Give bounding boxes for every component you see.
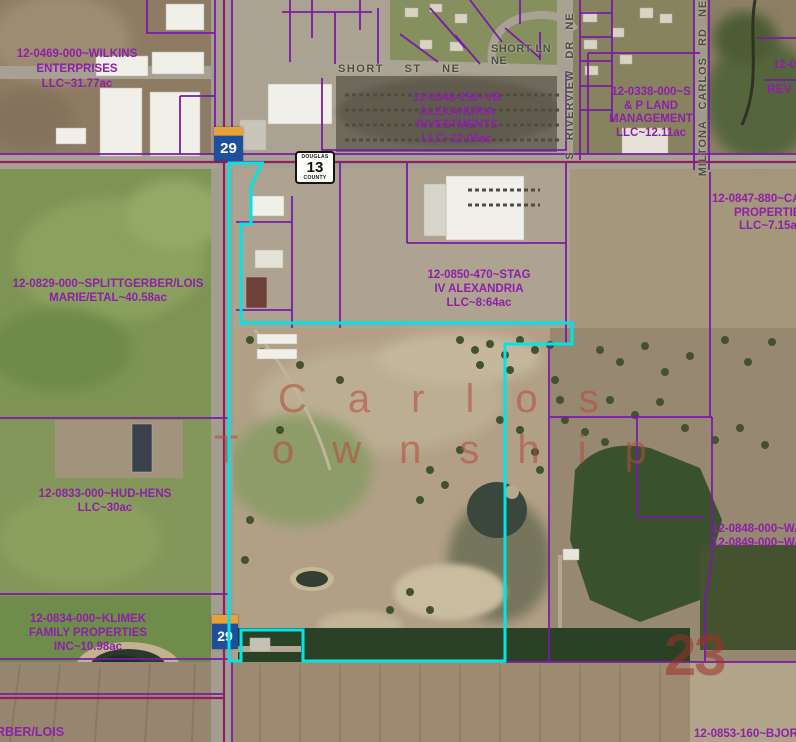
county-marker-bottom: COUNTY [299, 175, 331, 181]
parcel-label-hud-hens: 12-0833-000~HUD-HENS LLC~30ac [22, 487, 188, 515]
parcel-label-bjorg: 12-0853-160~BJORG [694, 728, 796, 742]
shield-route-number: 29 [214, 136, 243, 161]
parcel-label-wilkins: 12-0469-000~WILKINS ENTERPRISES LLC~31.7… [6, 47, 148, 92]
parcel-label-vb-alexandria: 12-0348-250~VB ALEXANDRIA INVESTMENTS LL… [398, 92, 516, 146]
county-marker-number: 13 [299, 160, 331, 175]
township-name-line1: Carlos [278, 377, 640, 422]
parcel-label-stag: 12-0850-470~STAG IV ALEXANDRIA LLC~8:64a… [418, 268, 540, 310]
shield-top-bar [212, 615, 238, 624]
parcel-label-splittgerber: 12-0829-000~SPLITTGERBER/LOIS MARIE/ETAL… [8, 277, 208, 305]
parcel-label-edge-ne-1: 12-0 [773, 59, 796, 73]
street-label-riverview: S RIVERVIEW DR NE [564, 12, 576, 159]
parcel-label-s-p-land: 12-0338-000~S & P LAND MANAGEMENT LLC~12… [594, 86, 708, 140]
township-name-line2: Township [214, 428, 685, 473]
parcel-label-edge-sw: RBER/LOIS [0, 726, 86, 740]
shield-route-number: 29 [212, 624, 238, 649]
county-road-13-marker: DOUGLAS 13 COUNTY [295, 151, 335, 184]
section-number: 23 [664, 622, 725, 689]
gis-map-viewport[interactable]: 12-0469-000~WILKINS ENTERPRISES LLC~31.7… [0, 0, 796, 742]
street-label-short-ln: SHORT LN NE [491, 43, 551, 67]
parcel-label-klimek: 12-0834-000~KLIMEK FAMILY PROPERTIES INC… [12, 612, 164, 654]
parcel-label-edge-ne-2: REV [767, 83, 796, 97]
highway-29-shield-south: 29 [212, 615, 238, 649]
parcel-label-wa-north: 12-0848-000~WA 12-0849-000~WA [712, 523, 796, 550]
shield-top-bar [214, 127, 243, 136]
parcel-label-car-properties: 12-0847-880~CA PROPERTIES LLC~7.15ac [712, 193, 796, 234]
highway-29-shield-north: 29 [214, 127, 243, 161]
street-label-short-st: SHORT ST NE [338, 63, 460, 75]
